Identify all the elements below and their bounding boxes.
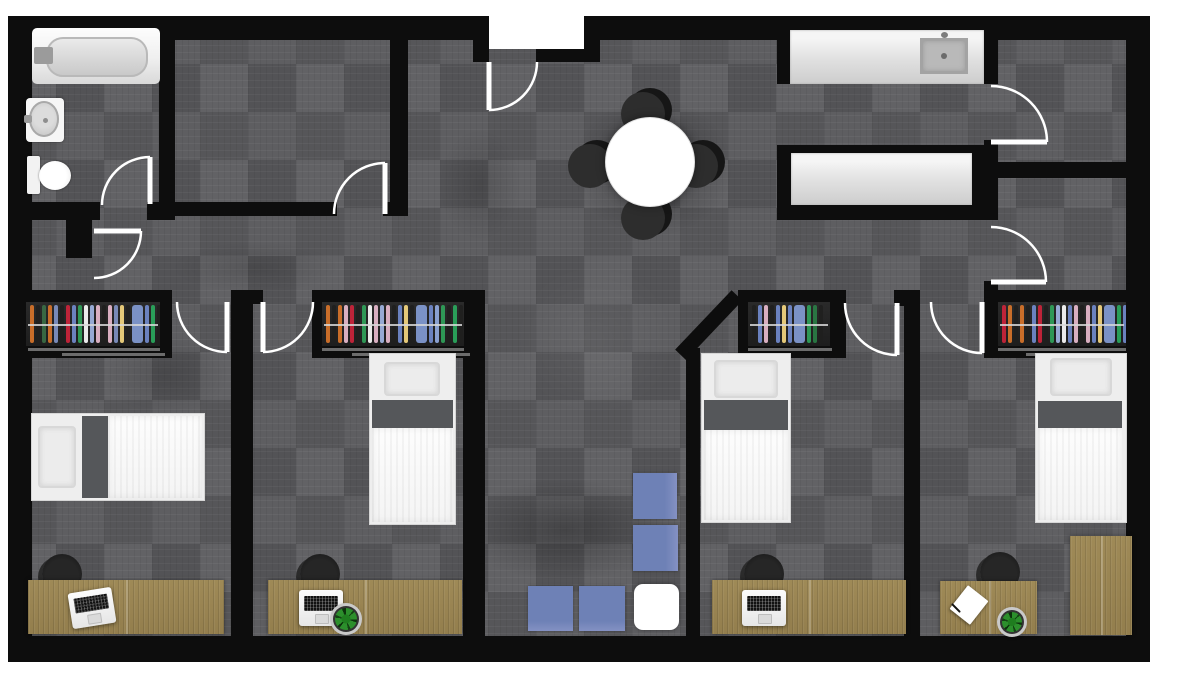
room-right-top[interactable] (998, 40, 1126, 162)
sink-faucet-dot (941, 32, 948, 38)
closet-track (998, 348, 1126, 351)
wall-exterior-bottom (8, 636, 1150, 662)
wall-kitchen-counter-right (984, 16, 998, 84)
laptop-trackpad (315, 614, 329, 624)
closet-rod (750, 324, 828, 326)
laptop-keyboard (304, 596, 338, 611)
wall-bathroom-right (159, 16, 175, 206)
bed-blanket-band (704, 400, 788, 430)
plant-leaves (335, 608, 357, 630)
bed-duvet (372, 428, 453, 522)
laptop-bedroom1[interactable] (67, 587, 116, 629)
wall-divider-bed1-bed2 (231, 290, 253, 662)
wall-peninsula-top (777, 145, 977, 153)
desk-bedroom2[interactable] (268, 580, 462, 634)
closet-track (28, 348, 160, 351)
floor-plan-canvas (0, 0, 1180, 690)
entry-exterior-landing (489, 16, 584, 49)
laptop-keyboard (73, 593, 109, 613)
wall-bedroom2-door-stub (253, 290, 263, 304)
sofa-module-1[interactable] (633, 473, 677, 519)
bed-bedroom2[interactable] (370, 354, 455, 524)
plant-bedroom2[interactable] (333, 606, 359, 632)
bed-pillow (1050, 358, 1112, 396)
closet-bedroom4[interactable] (998, 302, 1126, 346)
dining-table[interactable] (606, 118, 694, 206)
wall-storage-right (390, 16, 408, 216)
closet-rod (28, 324, 158, 326)
desk-bedroom1[interactable] (28, 580, 224, 634)
wall-entry-jamb-left (473, 16, 489, 62)
bathtub[interactable] (32, 28, 160, 84)
closet-bedroom2[interactable] (322, 302, 464, 346)
ottoman[interactable] (634, 584, 679, 630)
laptop-keyboard (747, 596, 781, 611)
closet-track (62, 353, 165, 356)
closet-bedroom1[interactable] (26, 302, 160, 346)
wall-entry-setback (536, 48, 600, 62)
kitchen-counter[interactable] (790, 30, 984, 84)
laptop-trackpad (87, 613, 102, 625)
bed-bedroom1[interactable] (32, 414, 204, 500)
sofa-module-4[interactable] (579, 586, 625, 631)
toilet[interactable] (39, 161, 71, 190)
sofa-module-2[interactable] (633, 525, 678, 571)
bed-bedroom4[interactable] (1036, 354, 1126, 522)
sink-drain-dot (941, 53, 947, 59)
pedestal-sink[interactable] (26, 98, 64, 142)
wall-peninsula-bottom (777, 205, 998, 220)
sofa-module-3[interactable] (528, 586, 573, 631)
wall-divider-bed3-bed4 (904, 290, 920, 662)
wall-storage-bottom (147, 202, 337, 216)
closet-track (322, 348, 464, 351)
kitchen-peninsula-counter[interactable] (791, 153, 972, 205)
wall-divider-living-bed3 (686, 348, 700, 662)
wall-storage-bottom-right (383, 202, 408, 216)
laptop-trackpad (758, 614, 772, 624)
room-kitchen[interactable] (790, 84, 985, 145)
wall-kitchen-counter-left (777, 16, 791, 84)
room-living[interactable] (485, 260, 685, 636)
side-table-bedroom4[interactable] (1070, 536, 1132, 635)
room-right-mid[interactable] (998, 178, 1126, 290)
bed-blanket-band (1038, 401, 1122, 428)
wall-hall-stub (66, 218, 92, 258)
bed-duvet (108, 416, 202, 498)
wall-right-rooms-divider (997, 162, 1150, 178)
laptop-bedroom3[interactable] (742, 590, 786, 626)
plant-leaves (1002, 612, 1022, 632)
plant-bedroom4[interactable] (1000, 610, 1024, 634)
closet-rod (1000, 324, 1124, 326)
bed-duvet (1038, 428, 1122, 520)
closet-track (748, 348, 832, 351)
sink-drain (43, 118, 48, 123)
room-storage[interactable] (177, 40, 390, 202)
bed-bedroom3[interactable] (702, 354, 790, 522)
bed-blanket-band (82, 416, 108, 498)
closet-rod (324, 324, 462, 326)
bathtub-basin (46, 37, 148, 77)
bed-pillow (38, 426, 76, 488)
sink-faucet (24, 115, 32, 123)
bed-pillow (714, 360, 778, 398)
bed-blanket-band (372, 400, 453, 428)
room-entry-hall[interactable] (408, 40, 588, 218)
closet-bedroom3[interactable] (748, 302, 830, 346)
bathtub-faucet (34, 47, 53, 64)
wall-bedroom3-door-stub (894, 290, 920, 306)
bed-duvet (704, 430, 788, 520)
bed-pillow (384, 362, 440, 396)
